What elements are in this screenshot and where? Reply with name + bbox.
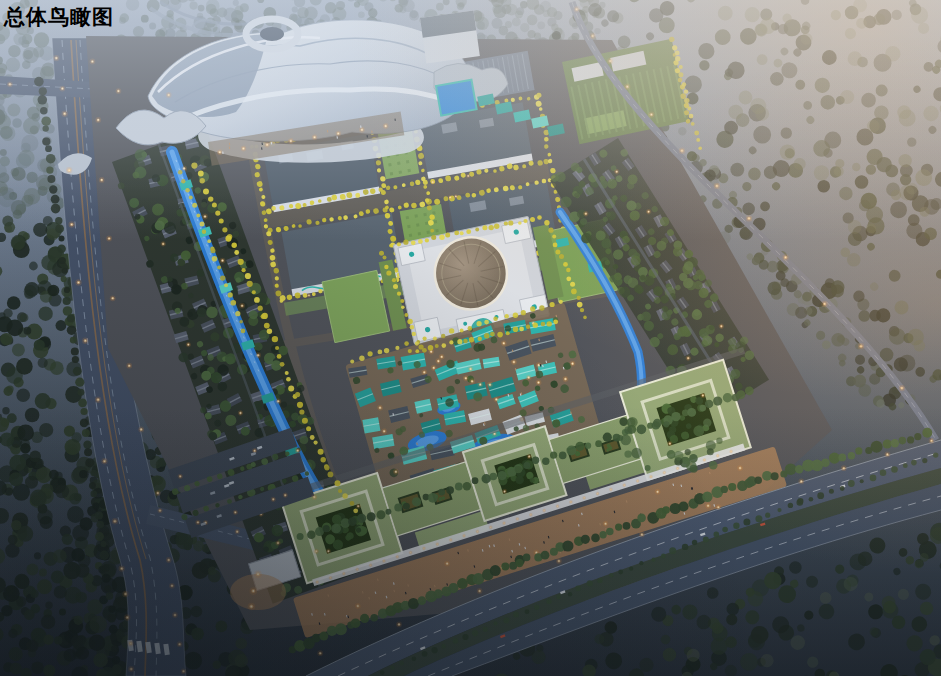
masterplan-aerial-rendering [0,0,941,676]
vignette-bottom [0,0,941,676]
aerial-rendering-page: 总体鸟瞰图 [0,0,941,676]
page-title: 总体鸟瞰图 [4,3,114,31]
